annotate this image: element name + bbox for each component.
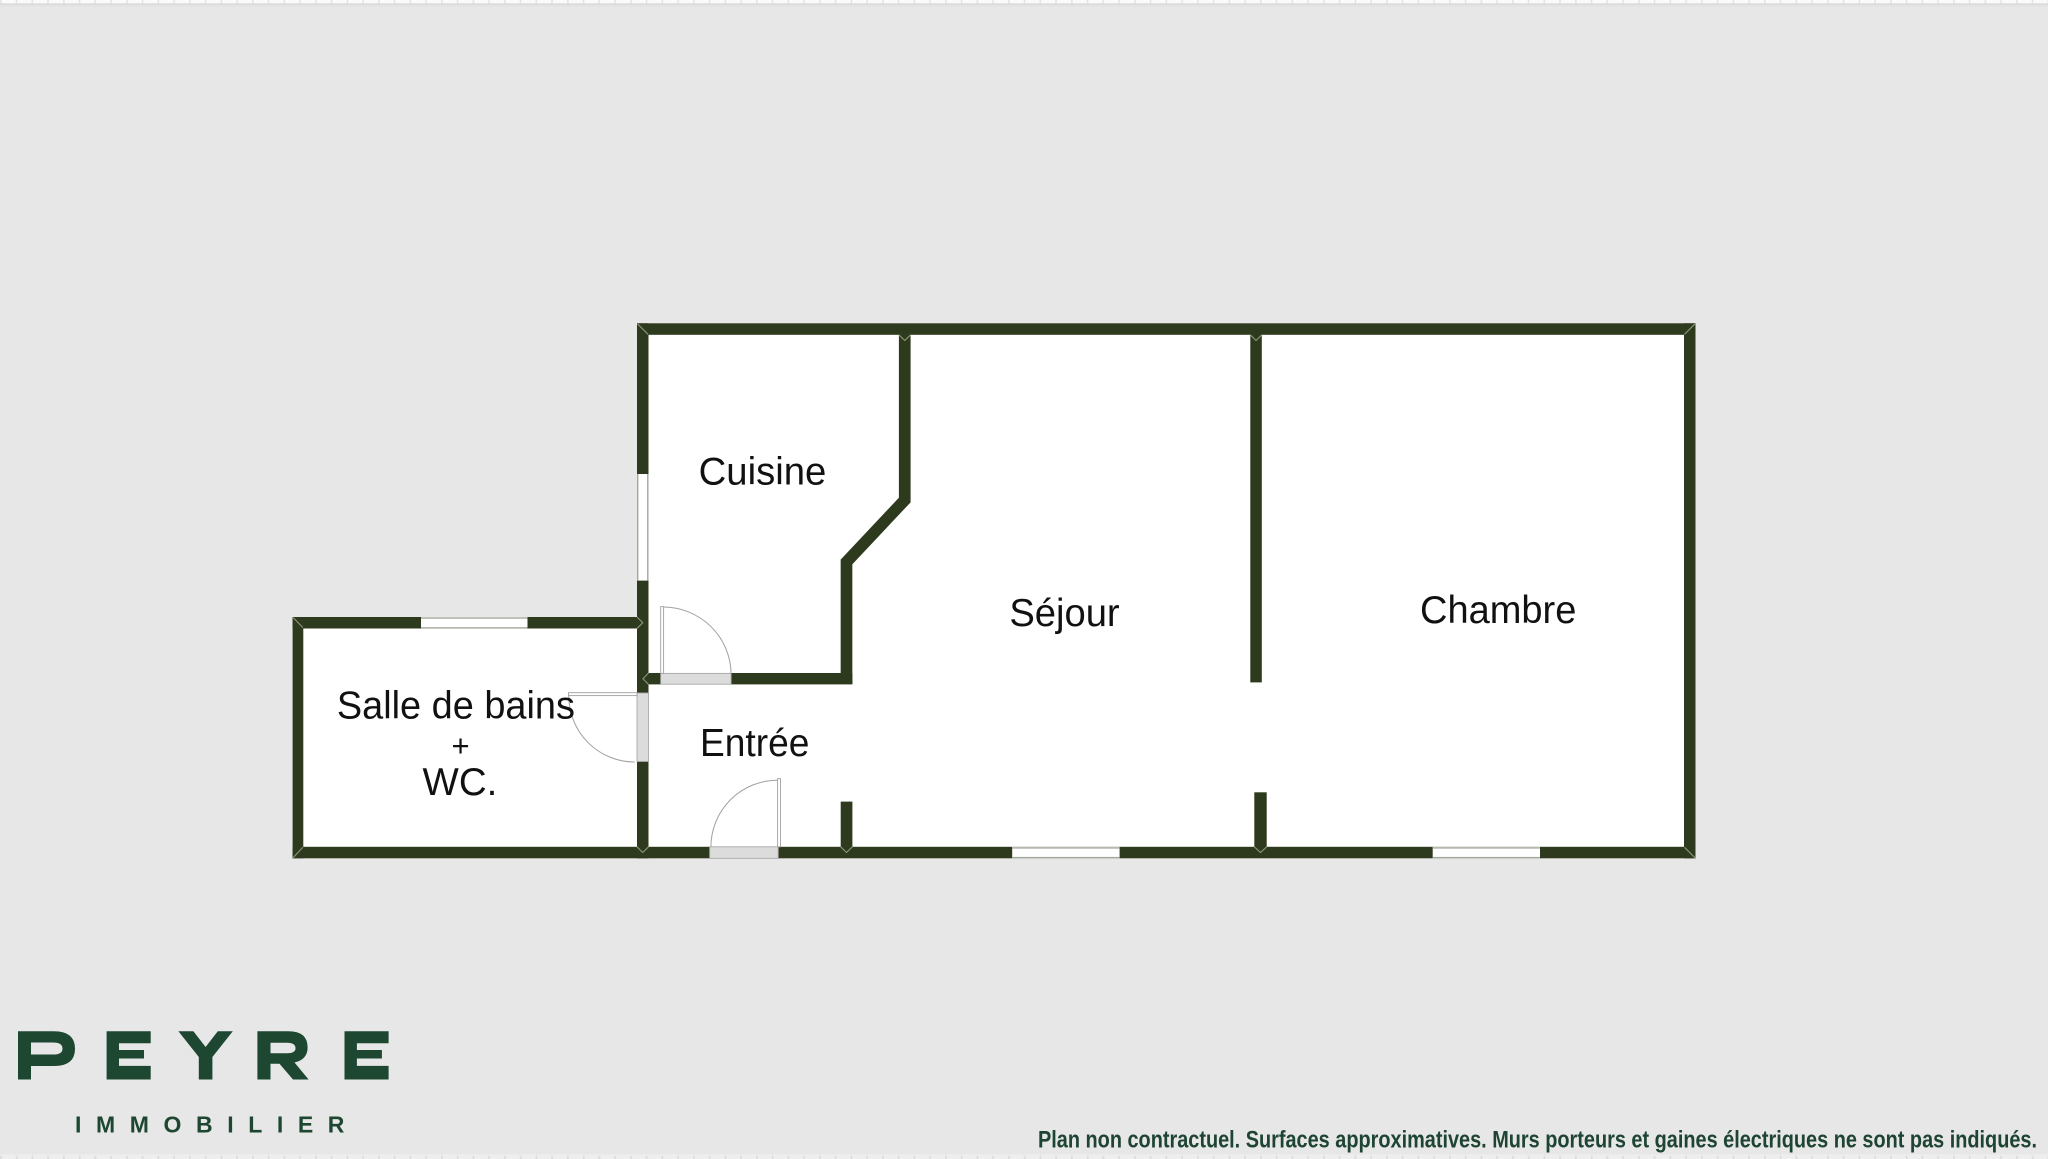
svg-text:Plan non contractuel. Surfaces: Plan non contractuel. Surfaces approxima… [1038,1127,2037,1154]
svg-text:Cuisine: Cuisine [699,451,827,494]
svg-text:IMMOBILIER: IMMOBILIER [75,1112,359,1138]
svg-text:Salle de bains: Salle de bains [337,684,575,727]
svg-text:Chambre: Chambre [1420,589,1576,632]
svg-text:WC.: WC. [423,761,498,804]
svg-text:Séjour: Séjour [1009,592,1119,635]
svg-text:+: + [452,728,470,763]
svg-text:Entrée: Entrée [700,722,809,765]
